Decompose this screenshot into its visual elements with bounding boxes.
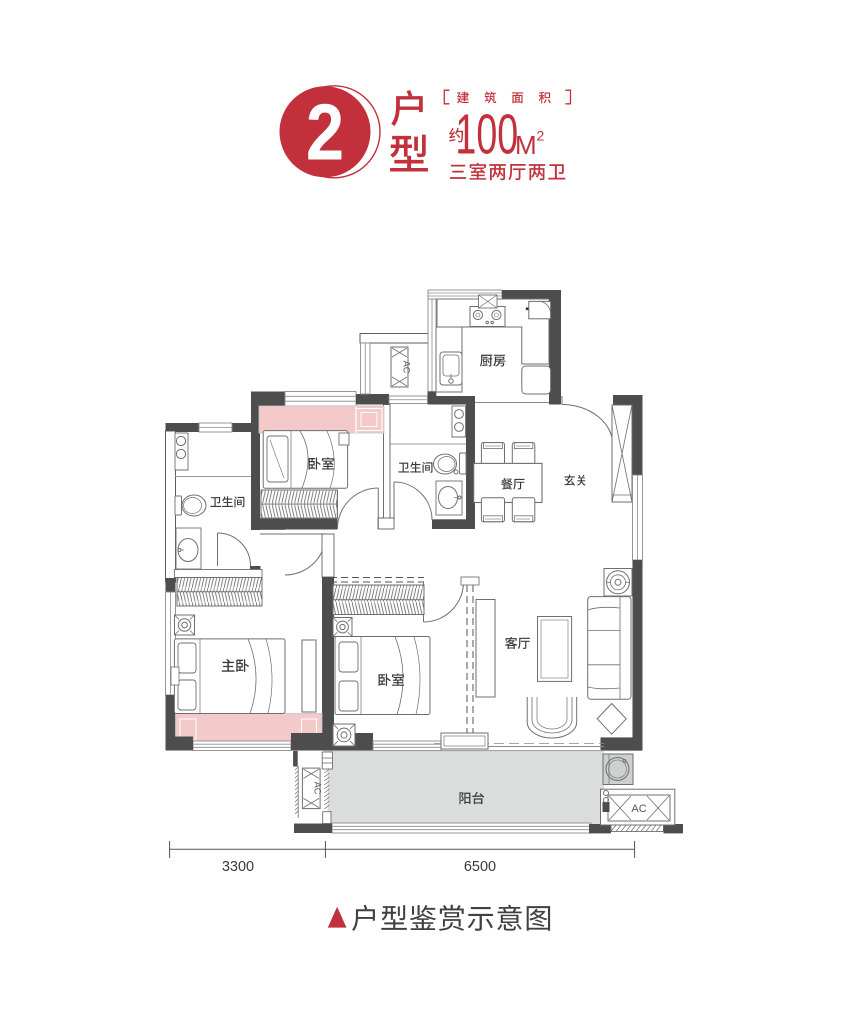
svg-text:AC: AC xyxy=(313,782,323,795)
svg-text:6500: 6500 xyxy=(464,859,496,875)
svg-text:AC: AC xyxy=(631,803,646,815)
svg-text:2: 2 xyxy=(537,128,545,144)
svg-text:3300: 3300 xyxy=(222,859,254,875)
svg-text:100: 100 xyxy=(455,103,518,167)
svg-text:2: 2 xyxy=(306,87,344,177)
svg-text:AC: AC xyxy=(402,361,412,374)
svg-text:M: M xyxy=(515,130,537,160)
